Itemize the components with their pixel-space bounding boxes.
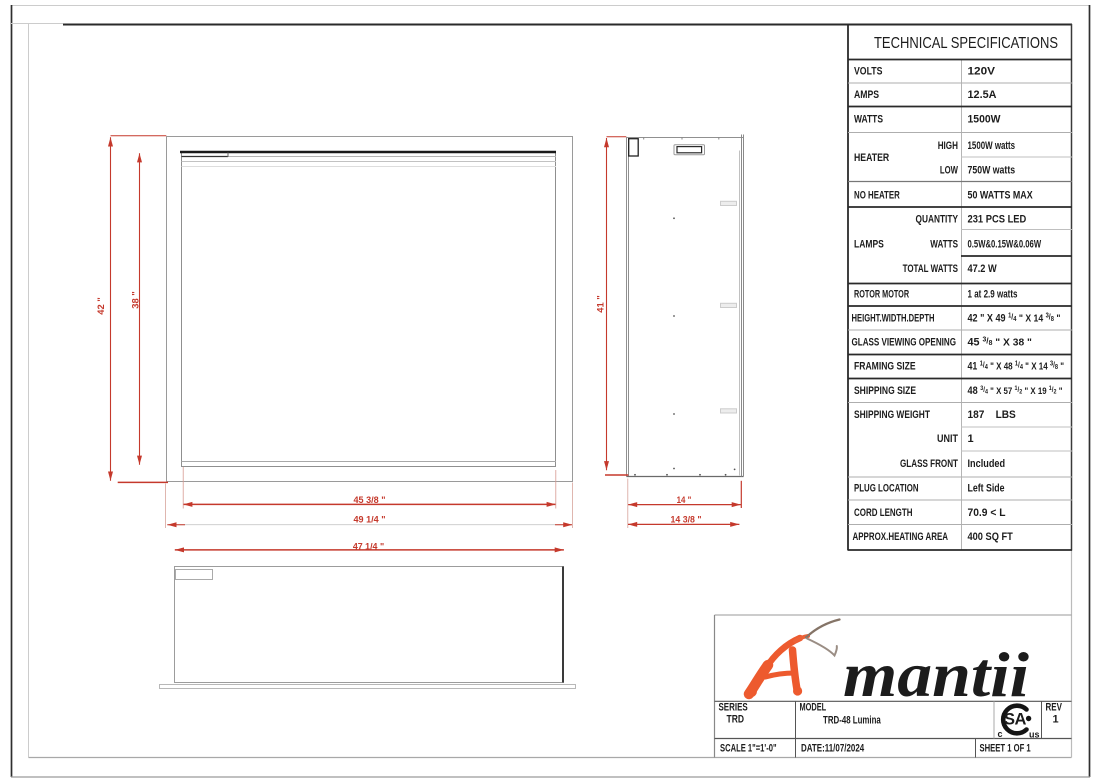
- svg-text:50 WATTS MAX: 50 WATTS MAX: [968, 190, 1034, 202]
- svg-text:NO HEATER: NO HEATER: [854, 190, 900, 202]
- svg-text:FRAMING SIZE: FRAMING SIZE: [854, 361, 916, 373]
- svg-text:12.5A: 12.5A: [968, 89, 997, 101]
- svg-text:1: 1: [1053, 714, 1059, 726]
- svg-text:SCALE 1"=1'-0": SCALE 1"=1'-0": [720, 742, 777, 754]
- svg-text:48 3/4 " X 57 1/2 " X 19 1/2 ": 48 3/4 " X 57 1/2 " X 19 1/2 ": [968, 385, 1063, 398]
- svg-text:GLASS FRONT: GLASS FRONT: [900, 458, 958, 470]
- svg-text:187 LBS: 187 LBS: [968, 409, 1016, 421]
- svg-text:SHEET 1 OF 1: SHEET 1 OF 1: [980, 742, 1031, 754]
- svg-text:41 ": 41 ": [596, 295, 607, 313]
- svg-text:DATE:11/07/2024: DATE:11/07/2024: [801, 742, 865, 754]
- svg-text:UNIT: UNIT: [937, 433, 958, 445]
- svg-text:1 at 2.9 watts: 1 at 2.9 watts: [968, 289, 1018, 301]
- svg-text:Included: Included: [968, 458, 1006, 470]
- svg-text:TRD-48 Lumina: TRD-48 Lumina: [823, 714, 881, 726]
- svg-text:PLUG LOCATION: PLUG LOCATION: [854, 483, 919, 495]
- svg-text:QUANTITY: QUANTITY: [916, 214, 959, 226]
- svg-text:HEIGHT.WIDTH.DEPTH: HEIGHT.WIDTH.DEPTH: [852, 313, 935, 325]
- svg-text:1500W: 1500W: [968, 114, 1002, 126]
- svg-text:us: us: [1029, 730, 1040, 740]
- svg-text:SHIPPING SIZE: SHIPPING SIZE: [854, 385, 916, 397]
- svg-text:47.2 W: 47.2 W: [968, 263, 998, 275]
- svg-text:ROTOR MOTOR: ROTOR MOTOR: [854, 289, 909, 301]
- svg-text:42 " X 49 1/4 " X 14 3/8 ": 42 " X 49 1/4 " X 14 3/8 ": [968, 312, 1061, 325]
- svg-text:70.9 < L: 70.9 < L: [968, 507, 1006, 519]
- svg-text:AMPS: AMPS: [854, 89, 879, 101]
- svg-text:47 1/4 ": 47 1/4 ": [353, 541, 384, 552]
- svg-text:VOLTS: VOLTS: [854, 66, 882, 78]
- svg-text:TECHNICAL SPECIFICATIONS: TECHNICAL SPECIFICATIONS: [874, 35, 1058, 52]
- svg-text:HIGH: HIGH: [938, 140, 958, 152]
- svg-text:14 3/8 ": 14 3/8 ": [671, 514, 702, 525]
- svg-text:42 ": 42 ": [96, 297, 107, 315]
- svg-text:HEATER: HEATER: [854, 152, 889, 164]
- svg-text:120V: 120V: [968, 66, 996, 78]
- svg-text:TRD: TRD: [727, 714, 745, 726]
- svg-text:MODEL: MODEL: [800, 702, 827, 714]
- svg-text:LAMPS: LAMPS: [854, 239, 884, 251]
- svg-text:0.5W&0.15W&0.06W: 0.5W&0.15W&0.06W: [968, 239, 1042, 251]
- svg-text:45 3/8 ": 45 3/8 ": [354, 495, 386, 506]
- svg-text:CORD LENGTH: CORD LENGTH: [854, 507, 913, 519]
- svg-text:38 ": 38 ": [131, 291, 142, 309]
- svg-text:231 PCS LED: 231 PCS LED: [968, 214, 1027, 226]
- svg-text:SA: SA: [1004, 711, 1027, 729]
- svg-text:SHIPPING WEIGHT: SHIPPING WEIGHT: [854, 409, 930, 421]
- svg-text:SERIES: SERIES: [719, 702, 748, 714]
- svg-text:TOTAL WATTS: TOTAL WATTS: [903, 263, 958, 275]
- svg-text:1: 1: [968, 433, 974, 445]
- svg-text:REV: REV: [1046, 702, 1063, 714]
- svg-text:GLASS VIEWING OPENING: GLASS VIEWING OPENING: [852, 337, 957, 349]
- svg-text:41 1/4 " X 48 1/4 " X 14 3/8: 41 1/4 " X 48 1/4 " X 14 3/8 ": [968, 360, 1065, 373]
- svg-text:WATTS: WATTS: [854, 114, 883, 126]
- svg-text:400 SQ FT: 400 SQ FT: [968, 531, 1014, 543]
- svg-text:14 ": 14 ": [677, 495, 692, 506]
- svg-text:WATTS: WATTS: [930, 239, 958, 251]
- svg-text:49 1/4 ": 49 1/4 ": [354, 515, 386, 526]
- svg-text:45 3/8 " X 38 ": 45 3/8 " X 38 ": [968, 336, 1032, 349]
- svg-text:Left Side: Left Side: [968, 483, 1005, 495]
- svg-text:APPROX.HEATING AREA: APPROX.HEATING AREA: [853, 531, 949, 543]
- svg-text:mantii: mantii: [843, 639, 1029, 710]
- svg-text:750W watts: 750W watts: [968, 165, 1016, 177]
- svg-text:1500W watts: 1500W watts: [968, 140, 1016, 152]
- svg-text:LOW: LOW: [940, 165, 959, 177]
- svg-text:c: c: [998, 729, 1003, 739]
